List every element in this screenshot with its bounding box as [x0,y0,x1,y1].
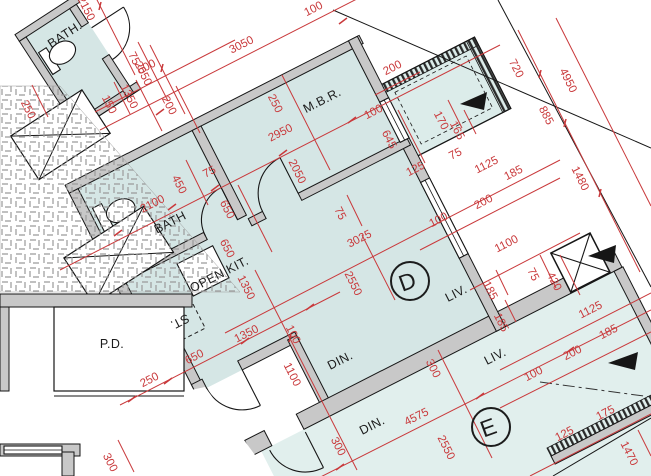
pd-block [0,294,192,396]
dimension-label: 720 [506,57,525,80]
dimension-label: 1100 [281,361,303,388]
dimension-label: 200 [159,94,178,117]
dimension-label: 100 [302,0,325,19]
wall-pd-left [0,307,9,391]
floorplan-page: BATH.M.B.R.BATHOPEN KIT.ST.P.D.DIN.LIV.D… [0,0,651,476]
dimension-label: 4950 [557,67,579,95]
dimension-label: 885 [536,104,555,127]
room-label: P.D. [100,337,124,351]
dimension-label: 1100 [493,233,520,255]
floorplan-canvas: BATH.M.B.R.BATHOPEN KIT.ST.P.D.DIN.LIV.D… [0,0,651,476]
wall-pd-top [0,294,192,307]
dimension-label: 1125 [473,154,500,176]
dimension-label: 75 [524,266,541,283]
dimension-label: 75 [447,146,464,163]
